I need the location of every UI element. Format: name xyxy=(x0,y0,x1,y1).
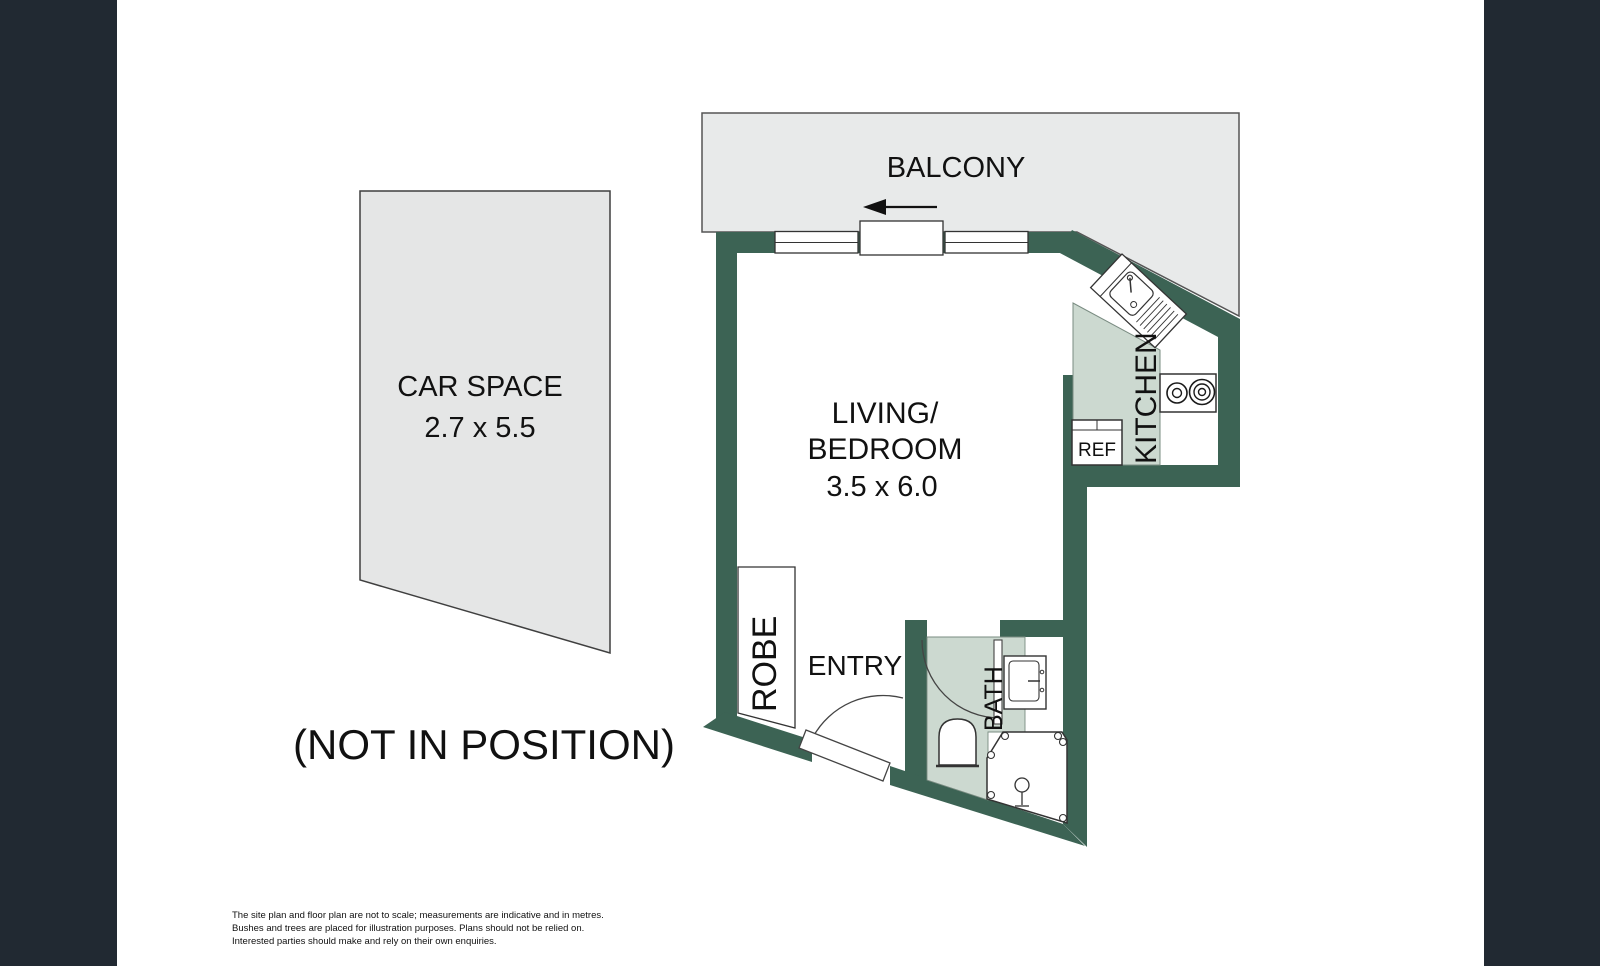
wall-bath-left xyxy=(905,620,927,786)
cooktop xyxy=(1160,374,1216,412)
balcony-label: BALCONY xyxy=(887,152,1026,184)
disclaimer-line-1: The site plan and floor plan are not to … xyxy=(232,910,604,921)
wall-left xyxy=(716,232,737,726)
wall-living-right xyxy=(1063,487,1087,637)
car-space-dimensions: 2.7 x 5.5 xyxy=(424,412,535,444)
right-letterbox-bar xyxy=(1484,0,1600,966)
balcony-sliding-door xyxy=(860,221,943,255)
entry-area: ROBE ENTRY xyxy=(738,567,903,781)
floorplan-page: BALCONY xyxy=(0,0,1600,966)
disclaimer-block: The site plan and floor plan are not to … xyxy=(232,910,604,947)
living-label-line2: BEDROOM xyxy=(807,433,962,466)
car-space-area: CAR SPACE 2.7 x 5.5 (NOT IN POSITION) xyxy=(293,191,675,768)
bath-label: BATH xyxy=(980,666,1008,731)
living-dimensions: 3.5 x 6.0 xyxy=(826,471,937,503)
wall-kitchen-right xyxy=(1218,319,1240,487)
disclaimer-line-2: Bushes and trees are placed for illustra… xyxy=(232,923,584,934)
car-space-label: CAR SPACE xyxy=(397,371,562,403)
entry-door-swing-arc xyxy=(813,695,903,737)
toilet xyxy=(936,719,979,766)
entry-label: ENTRY xyxy=(808,650,903,681)
kitchen-label: KITCHEN xyxy=(1130,332,1163,464)
floorplan-svg: BALCONY xyxy=(0,0,1600,966)
vanity-basin xyxy=(1004,656,1046,709)
robe-label: ROBE xyxy=(746,616,784,712)
living-label-line1: LIVING/ xyxy=(832,397,939,430)
disclaimer-line-3: Interested parties should make and rely … xyxy=(232,936,497,947)
refrigerator: REF xyxy=(1072,420,1122,465)
wall-bath-top-right xyxy=(1000,620,1087,637)
car-space-note: (NOT IN POSITION) xyxy=(293,721,675,768)
entry-door-leaf xyxy=(799,730,890,781)
living-bedroom-area: LIVING/ BEDROOM 3.5 x 6.0 xyxy=(807,397,962,503)
wall-kitchen-bottom xyxy=(1063,465,1240,487)
left-letterbox-bar xyxy=(0,0,117,966)
ref-label: REF xyxy=(1078,440,1116,461)
